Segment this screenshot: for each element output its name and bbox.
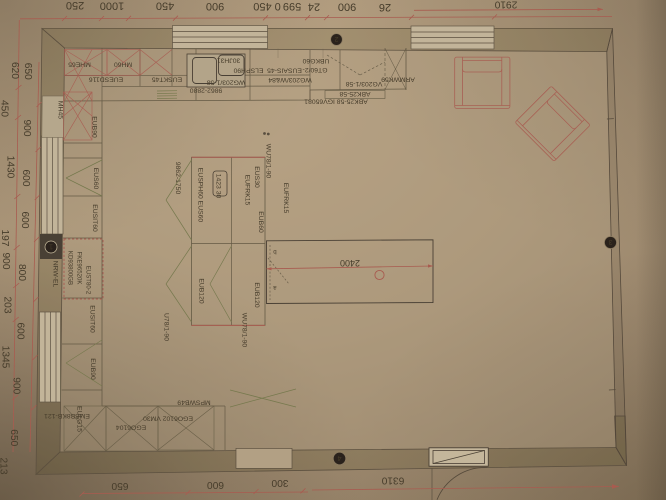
svg-text:EUB120: EUB120: [253, 282, 260, 308]
svg-text:MH45: MH45: [57, 101, 64, 119]
svg-text:250: 250: [66, 0, 84, 11]
svg-text:MPSWB49: MPSWB49: [177, 399, 210, 406]
svg-text:EUS30: EUS30: [253, 166, 260, 188]
svg-text:WG203/1-58: WG203/1-58: [207, 79, 246, 86]
svg-text:KD93800GB: KD93800GB: [67, 251, 74, 285]
svg-text:EUB60: EUB60: [257, 211, 264, 233]
svg-text:EMBB8KB-121: EMBB8KB-121: [44, 412, 90, 419]
svg-text:650: 650: [22, 63, 33, 80]
svg-text:U78/1-90: U78/1-90: [163, 313, 170, 341]
svg-text:0 450: 0 450: [253, 0, 281, 12]
svg-text:213: 213: [0, 458, 9, 475]
svg-text:EUESD116: EUESD116: [89, 76, 123, 83]
svg-text:600: 600: [14, 323, 25, 340]
svg-text:1345: 1345: [0, 346, 10, 369]
svg-text:EUFRK15: EUFRK15: [282, 183, 289, 214]
svg-text:WU78/1-90: WU78/1-90: [265, 144, 272, 179]
svg-text:800: 800: [16, 264, 27, 281]
svg-text:EUSPH60 EUS60: EUSPH60 EUS60: [197, 168, 204, 223]
svg-text:EUSAIS-45: EUSAIS-45: [267, 67, 302, 74]
svg-text:EUSKT45: EUSKT45: [152, 76, 182, 83]
svg-text:2910: 2910: [494, 0, 517, 10]
svg-text:ABK25-58: ABK25-58: [339, 90, 370, 97]
svg-text:300: 300: [271, 477, 288, 488]
svg-text:EUB90: EUB90: [91, 116, 98, 138]
svg-text:600: 600: [207, 479, 224, 490]
svg-text:24: 24: [308, 0, 320, 12]
svg-text:EUS60: EUS60: [92, 168, 99, 190]
svg-text:600: 600: [20, 170, 31, 187]
svg-text:MHE65: MHE65: [68, 61, 91, 68]
svg-text:450: 450: [156, 0, 174, 11]
svg-text:600: 600: [19, 212, 30, 229]
svg-text:EGO6104: EGO6104: [116, 424, 146, 431]
svg-text:620: 620: [9, 62, 20, 79]
svg-text:6310: 6310: [381, 475, 404, 486]
svg-text:900: 900: [11, 377, 22, 394]
svg-text:900: 900: [21, 120, 32, 137]
svg-text:650: 650: [111, 480, 128, 491]
svg-text:900: 900: [338, 0, 356, 12]
svg-text:VG203/1-58: VG203/1-58: [345, 80, 382, 87]
svg-text:450: 450: [0, 100, 10, 117]
svg-text:197: 197: [0, 230, 10, 247]
svg-text:2: 2: [334, 35, 338, 42]
svg-text:203: 203: [1, 297, 12, 314]
svg-text:ELSPH90: ELSPH90: [233, 67, 263, 74]
svg-text:9862-1750: 9862-1750: [174, 162, 181, 195]
svg-text:WU78/1-90: WU78/1-90: [241, 313, 248, 348]
svg-text:1423 30: 1423 30: [215, 174, 222, 199]
svg-text:WG203/W&84: WG203/W&84: [268, 76, 312, 83]
svg-text:9862-2880: 9862-2880: [190, 87, 223, 94]
svg-text:4: 4: [337, 454, 341, 461]
svg-text:1: 1: [49, 243, 53, 250]
svg-text:ARMWK59: ARMWK59: [381, 76, 415, 83]
svg-text:NRW-EL: NRW-EL: [52, 261, 59, 288]
svg-text:GT60/2-: GT60/2-: [303, 66, 328, 73]
svg-text:EUSIT60: EUSIT60: [91, 204, 98, 232]
svg-text:599: 599: [283, 0, 301, 12]
svg-text:1430: 1430: [4, 156, 15, 179]
svg-text:EUB90: EUB90: [89, 358, 96, 380]
svg-text:EUST80-2: EUST80-2: [85, 266, 92, 295]
svg-text:EUSIT60: EUSIT60: [89, 305, 96, 333]
svg-text:EUB120: EUB120: [198, 278, 205, 304]
svg-text:3: 3: [608, 238, 612, 245]
svg-text:900: 900: [0, 253, 11, 270]
svg-text:EUFRK15: EUFRK15: [244, 175, 251, 206]
svg-text:650: 650: [8, 429, 19, 446]
svg-text:1000: 1000: [100, 0, 124, 11]
svg-text:MH60: MH60: [114, 61, 132, 68]
svg-text:FKE96520K: FKE96520K: [76, 252, 83, 285]
svg-text:2400: 2400: [340, 258, 360, 268]
svg-text:900: 900: [206, 0, 224, 12]
svg-text:EGO6102 VM30: EGO6102 VM30: [143, 415, 193, 422]
svg-text:UBKG60: UBKG60: [302, 57, 329, 64]
svg-text:26: 26: [379, 1, 391, 13]
svg-text:30JH31: 30JH31: [217, 57, 241, 64]
